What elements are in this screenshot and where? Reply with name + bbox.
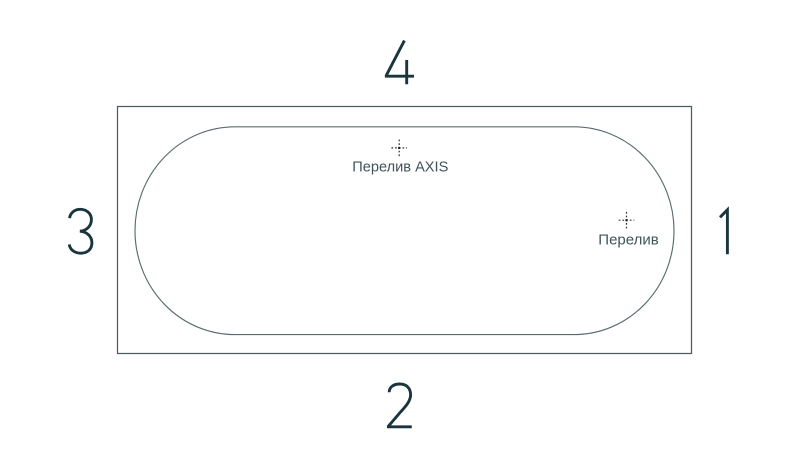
svg-text:Перелив AXIS: Перелив AXIS bbox=[352, 159, 448, 175]
svg-text:Перелив: Перелив bbox=[598, 232, 658, 249]
